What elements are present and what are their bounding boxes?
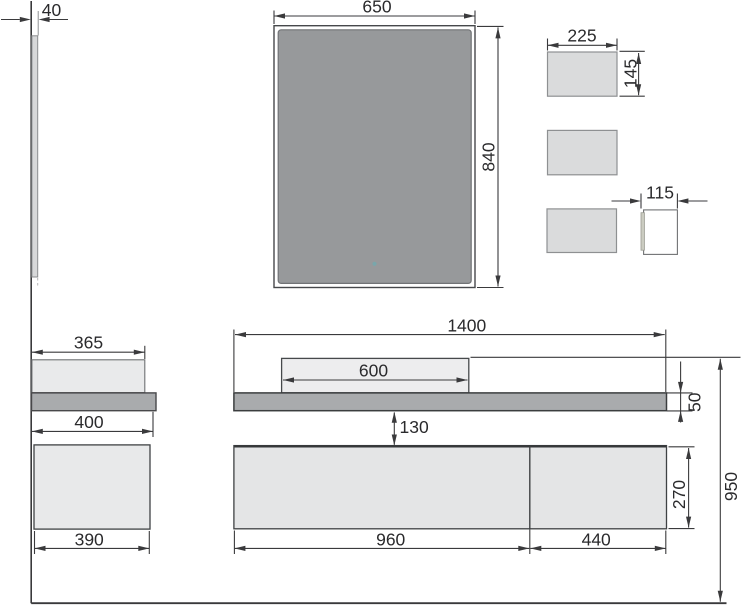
- svg-text:650: 650: [362, 0, 391, 17]
- svg-text:960: 960: [376, 530, 405, 550]
- svg-text:1400: 1400: [447, 315, 486, 335]
- svg-text:50: 50: [684, 392, 704, 412]
- svg-text:270: 270: [669, 480, 689, 509]
- svg-text:130: 130: [400, 417, 429, 437]
- svg-text:950: 950: [721, 472, 741, 501]
- svg-text:390: 390: [75, 530, 104, 550]
- svg-text:145: 145: [621, 59, 641, 88]
- svg-text:440: 440: [582, 530, 611, 550]
- svg-text:840: 840: [479, 142, 499, 171]
- svg-text:225: 225: [567, 25, 596, 45]
- svg-text:40: 40: [42, 0, 62, 20]
- svg-text:365: 365: [74, 332, 103, 352]
- svg-text:115: 115: [646, 183, 674, 203]
- svg-text:600: 600: [359, 360, 388, 380]
- svg-text:400: 400: [74, 412, 103, 432]
